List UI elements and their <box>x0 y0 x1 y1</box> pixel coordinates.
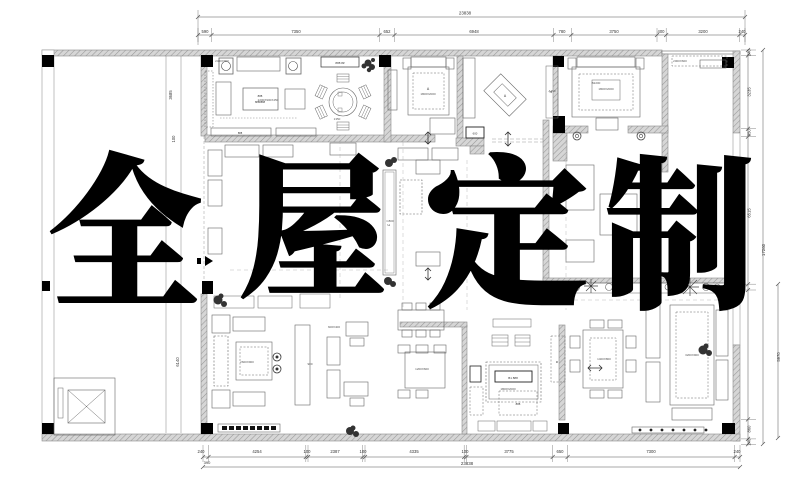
svg-text:900: 900 <box>307 362 312 366</box>
svg-text:100: 100 <box>171 135 176 143</box>
svg-text:2200X900X450: 2200X900X450 <box>258 98 279 102</box>
svg-text:100: 100 <box>304 449 312 454</box>
svg-text:2387: 2387 <box>330 449 340 454</box>
svg-text:6140: 6140 <box>175 357 180 367</box>
svg-text:3200: 3200 <box>698 29 708 34</box>
svg-text:7300: 7300 <box>646 449 656 454</box>
svg-text:1800X2000: 1800X2000 <box>598 87 614 91</box>
svg-text:860: 860 <box>747 425 752 433</box>
svg-text:3775: 3775 <box>504 449 514 454</box>
svg-text:3685: 3685 <box>168 90 173 100</box>
svg-text:240: 240 <box>747 49 752 57</box>
svg-text:390: 390 <box>204 460 211 465</box>
svg-text:888: 888 <box>516 402 521 406</box>
svg-text:100: 100 <box>360 449 368 454</box>
svg-text:3200X900: 3200X900 <box>685 353 699 357</box>
svg-text:6515: 6515 <box>747 208 752 218</box>
svg-text:5970: 5970 <box>776 352 781 362</box>
svg-text:1400X800: 1400X800 <box>597 357 611 361</box>
svg-text:590: 590 <box>202 29 210 34</box>
svg-text:240: 240 <box>734 449 742 454</box>
svg-text:7350: 7350 <box>291 29 301 34</box>
svg-text:1350: 1350 <box>334 117 341 121</box>
svg-text:240: 240 <box>198 449 206 454</box>
svg-text:600: 600 <box>473 132 478 136</box>
svg-text:3235: 3235 <box>747 87 752 97</box>
svg-text:17260: 17260 <box>761 243 766 256</box>
svg-text:780: 780 <box>559 29 567 34</box>
svg-text:23838: 23838 <box>459 11 472 16</box>
svg-text:3750: 3750 <box>609 29 619 34</box>
svg-text:1800X2000: 1800X2000 <box>500 387 516 391</box>
svg-text:888: 888 <box>238 131 243 135</box>
svg-text:4254: 4254 <box>252 449 262 454</box>
svg-text:1800X2000: 1800X2000 <box>420 92 436 96</box>
svg-text:4335: 4335 <box>409 449 419 454</box>
svg-text:400: 400 <box>658 29 666 34</box>
svg-text:2000X600: 2000X600 <box>673 59 687 63</box>
svg-text:6948: 6948 <box>469 29 479 34</box>
svg-text:C800: C800 <box>386 219 394 223</box>
svg-text:B2200: B2200 <box>592 81 601 85</box>
svg-text:600X400: 600X400 <box>328 325 340 329</box>
svg-text:240: 240 <box>747 438 752 446</box>
svg-text:1200X600: 1200X600 <box>415 367 429 371</box>
svg-text:350: 350 <box>747 129 752 137</box>
svg-text:650: 650 <box>557 449 565 454</box>
svg-text:240: 240 <box>739 29 747 34</box>
svg-text:100: 100 <box>462 449 470 454</box>
svg-text:A450: A450 <box>548 89 555 93</box>
svg-text:652: 652 <box>384 29 392 34</box>
svg-text:B1 888: B1 888 <box>508 376 518 380</box>
svg-text:B: B <box>555 361 559 363</box>
svg-text:23838: 23838 <box>461 461 474 466</box>
svg-text:2600X900: 2600X900 <box>240 360 254 364</box>
svg-text:2400X900: 2400X900 <box>215 59 229 63</box>
svg-text:888 8#: 888 8# <box>335 61 345 65</box>
